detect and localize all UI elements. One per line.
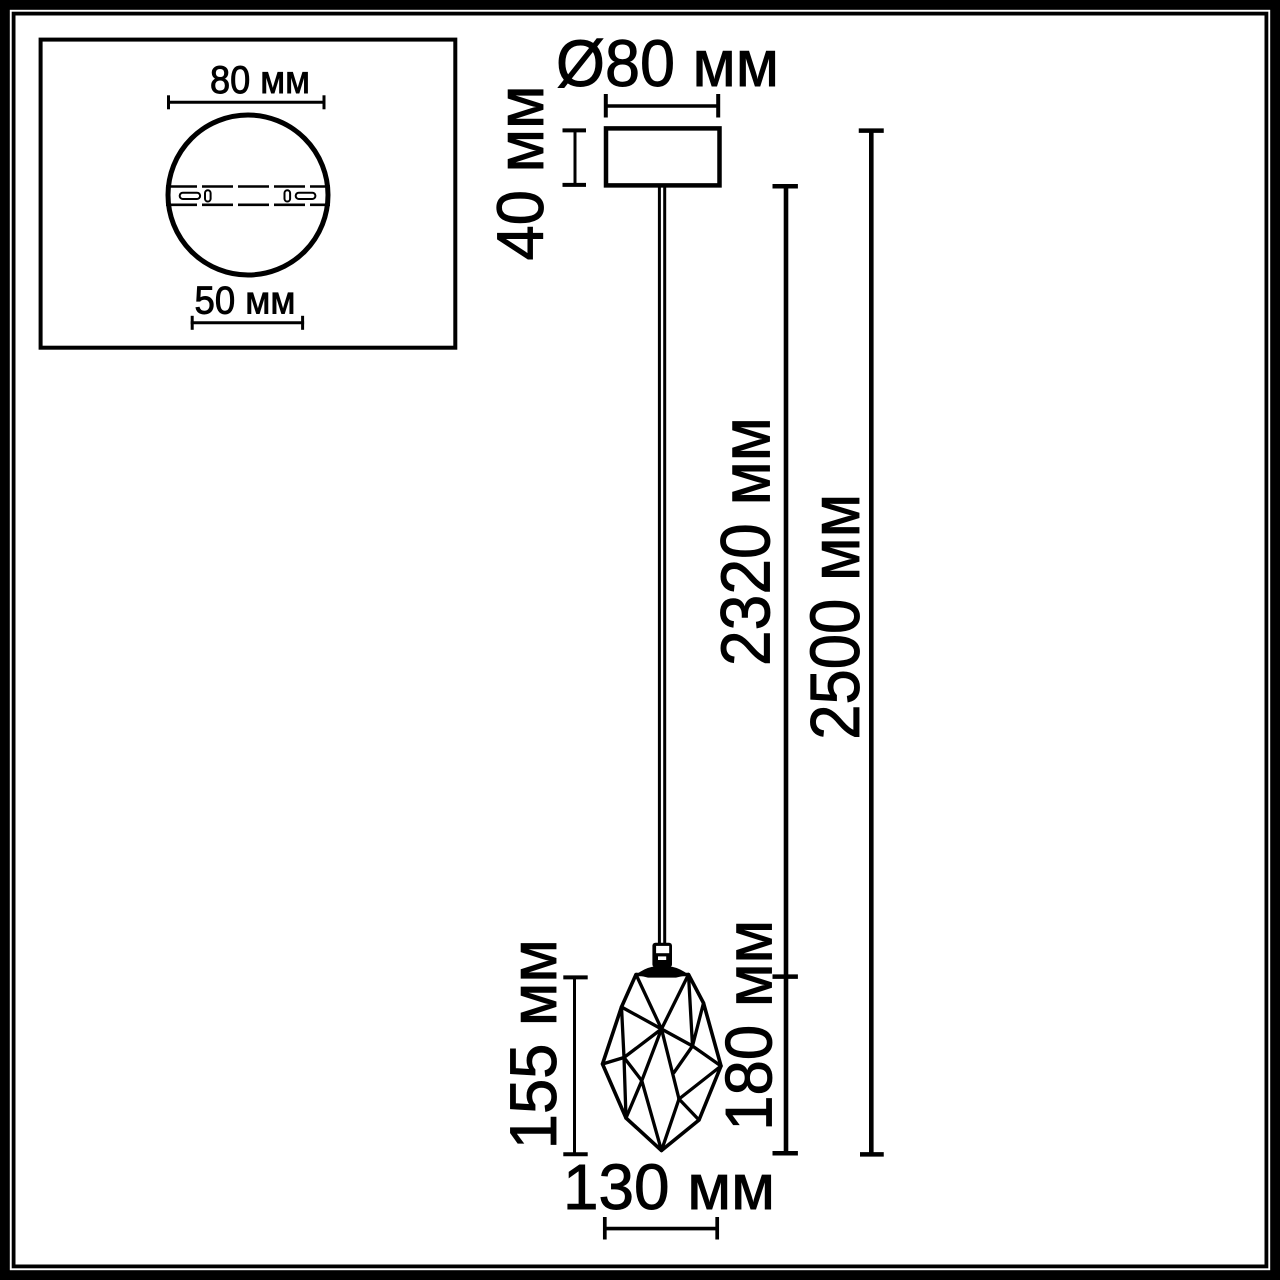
svg-text:80 мм: 80 мм bbox=[210, 59, 310, 102]
svg-text:130 мм: 130 мм bbox=[563, 1151, 775, 1223]
svg-text:155 мм: 155 мм bbox=[496, 939, 570, 1149]
svg-text:2320 мм: 2320 мм bbox=[706, 417, 784, 666]
svg-text:2500 мм: 2500 мм bbox=[796, 494, 874, 740]
svg-text:40 мм: 40 мм bbox=[483, 86, 557, 261]
svg-text:50 мм: 50 мм bbox=[195, 280, 296, 323]
svg-text:Ø80 мм: Ø80 мм bbox=[556, 26, 779, 100]
svg-text:180 мм: 180 мм bbox=[711, 920, 785, 1131]
